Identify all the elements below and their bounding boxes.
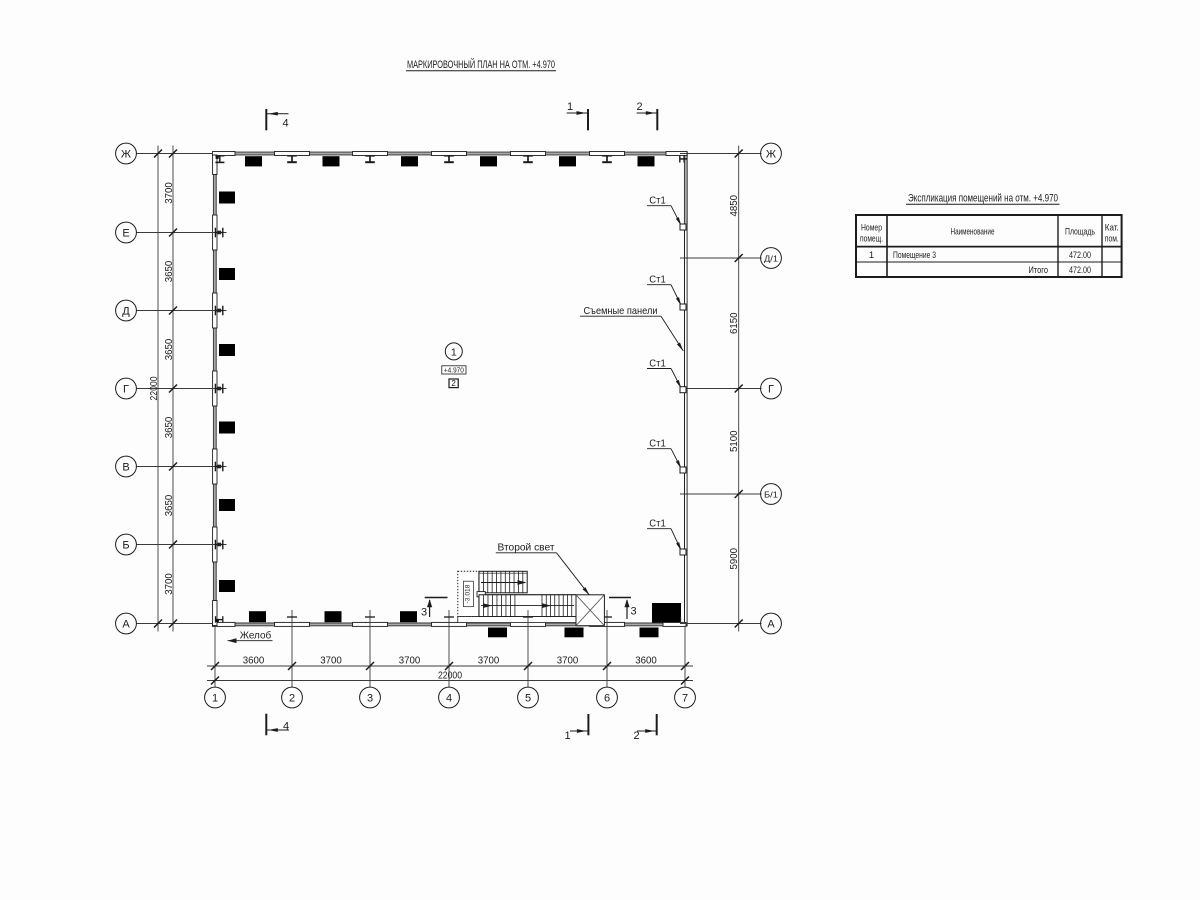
svg-text:А: А	[767, 619, 775, 631]
svg-text:4850: 4850	[728, 195, 740, 217]
svg-text:Съемные панели: Съемные панели	[584, 305, 658, 317]
svg-text:Ж: Ж	[121, 149, 131, 161]
svg-text:Ст1: Ст1	[649, 274, 666, 286]
svg-text:4: 4	[283, 721, 289, 733]
svg-text:Итого: Итого	[1029, 265, 1049, 276]
svg-text:1: 1	[564, 730, 570, 742]
svg-text:3700: 3700	[557, 654, 579, 666]
svg-text:В: В	[122, 462, 129, 474]
svg-text:5900: 5900	[728, 548, 740, 570]
svg-text:-3.018: -3.018	[464, 584, 471, 604]
svg-text:МАРКИРОВОЧНЫЙ ПЛАН НА ОТМ. +4.: МАРКИРОВОЧНЫЙ ПЛАН НА ОТМ. +4.970	[407, 58, 555, 71]
svg-text:Д: Д	[122, 306, 130, 318]
svg-text:+4.970: +4.970	[444, 368, 464, 375]
svg-text:Г: Г	[123, 384, 129, 396]
svg-text:Ст1: Ст1	[649, 195, 666, 207]
svg-text:3700: 3700	[478, 654, 500, 666]
svg-text:Ст1: Ст1	[649, 518, 666, 530]
svg-text:Кат.: Кат.	[1105, 223, 1119, 233]
svg-text:Желоб: Желоб	[240, 629, 272, 641]
svg-text:1: 1	[869, 250, 874, 261]
svg-text:22000: 22000	[148, 376, 160, 400]
svg-text:Г: Г	[768, 384, 774, 396]
svg-text:3600: 3600	[635, 654, 657, 666]
svg-text:4: 4	[446, 693, 452, 705]
svg-text:2: 2	[451, 379, 456, 388]
svg-text:6150: 6150	[728, 312, 740, 334]
svg-text:Е: Е	[122, 228, 129, 240]
svg-text:5100: 5100	[728, 430, 740, 452]
svg-text:Д/1: Д/1	[764, 254, 778, 264]
svg-text:Б/1: Б/1	[764, 490, 778, 500]
svg-text:Помещение 3: Помещение 3	[893, 250, 936, 261]
svg-text:22000: 22000	[438, 669, 462, 681]
svg-text:3650: 3650	[163, 339, 175, 361]
svg-text:3: 3	[630, 606, 636, 618]
svg-text:3700: 3700	[163, 573, 175, 595]
svg-text:3700: 3700	[163, 182, 175, 204]
svg-text:помещ.: помещ.	[860, 234, 883, 244]
svg-text:3650: 3650	[163, 495, 175, 517]
svg-text:пом.: пом.	[1105, 234, 1119, 244]
svg-text:3: 3	[367, 693, 373, 705]
svg-text:4: 4	[282, 118, 288, 130]
svg-text:6: 6	[604, 693, 610, 705]
svg-text:Ст1: Ст1	[649, 357, 666, 369]
svg-text:2: 2	[633, 730, 639, 742]
svg-text:Номер: Номер	[861, 223, 882, 233]
svg-text:Ст1: Ст1	[649, 438, 666, 450]
svg-text:2: 2	[636, 101, 642, 113]
svg-text:Наименование: Наименование	[951, 227, 995, 237]
svg-text:1: 1	[567, 101, 573, 113]
svg-text:3: 3	[421, 607, 427, 619]
svg-text:3600: 3600	[243, 654, 265, 666]
svg-text:Ж: Ж	[766, 149, 776, 161]
svg-text:Б: Б	[122, 540, 129, 552]
svg-text:3700: 3700	[320, 654, 342, 666]
svg-text:Экспликация помещений на отм.: Экспликация помещений на отм. +4.970	[908, 193, 1058, 205]
svg-text:5: 5	[525, 693, 531, 705]
svg-text:Площадь: Площадь	[1065, 227, 1095, 237]
svg-text:7: 7	[682, 693, 688, 705]
svg-text:2: 2	[289, 693, 295, 705]
svg-text:472.00: 472.00	[1069, 265, 1091, 276]
svg-text:1: 1	[212, 693, 218, 705]
svg-text:3650: 3650	[163, 417, 175, 439]
svg-text:472.00: 472.00	[1069, 250, 1091, 261]
svg-text:3650: 3650	[163, 261, 175, 283]
svg-text:А: А	[122, 619, 130, 631]
svg-text:Второй свет: Второй свет	[498, 541, 555, 553]
svg-text:3700: 3700	[399, 654, 421, 666]
svg-text:1: 1	[451, 346, 457, 358]
